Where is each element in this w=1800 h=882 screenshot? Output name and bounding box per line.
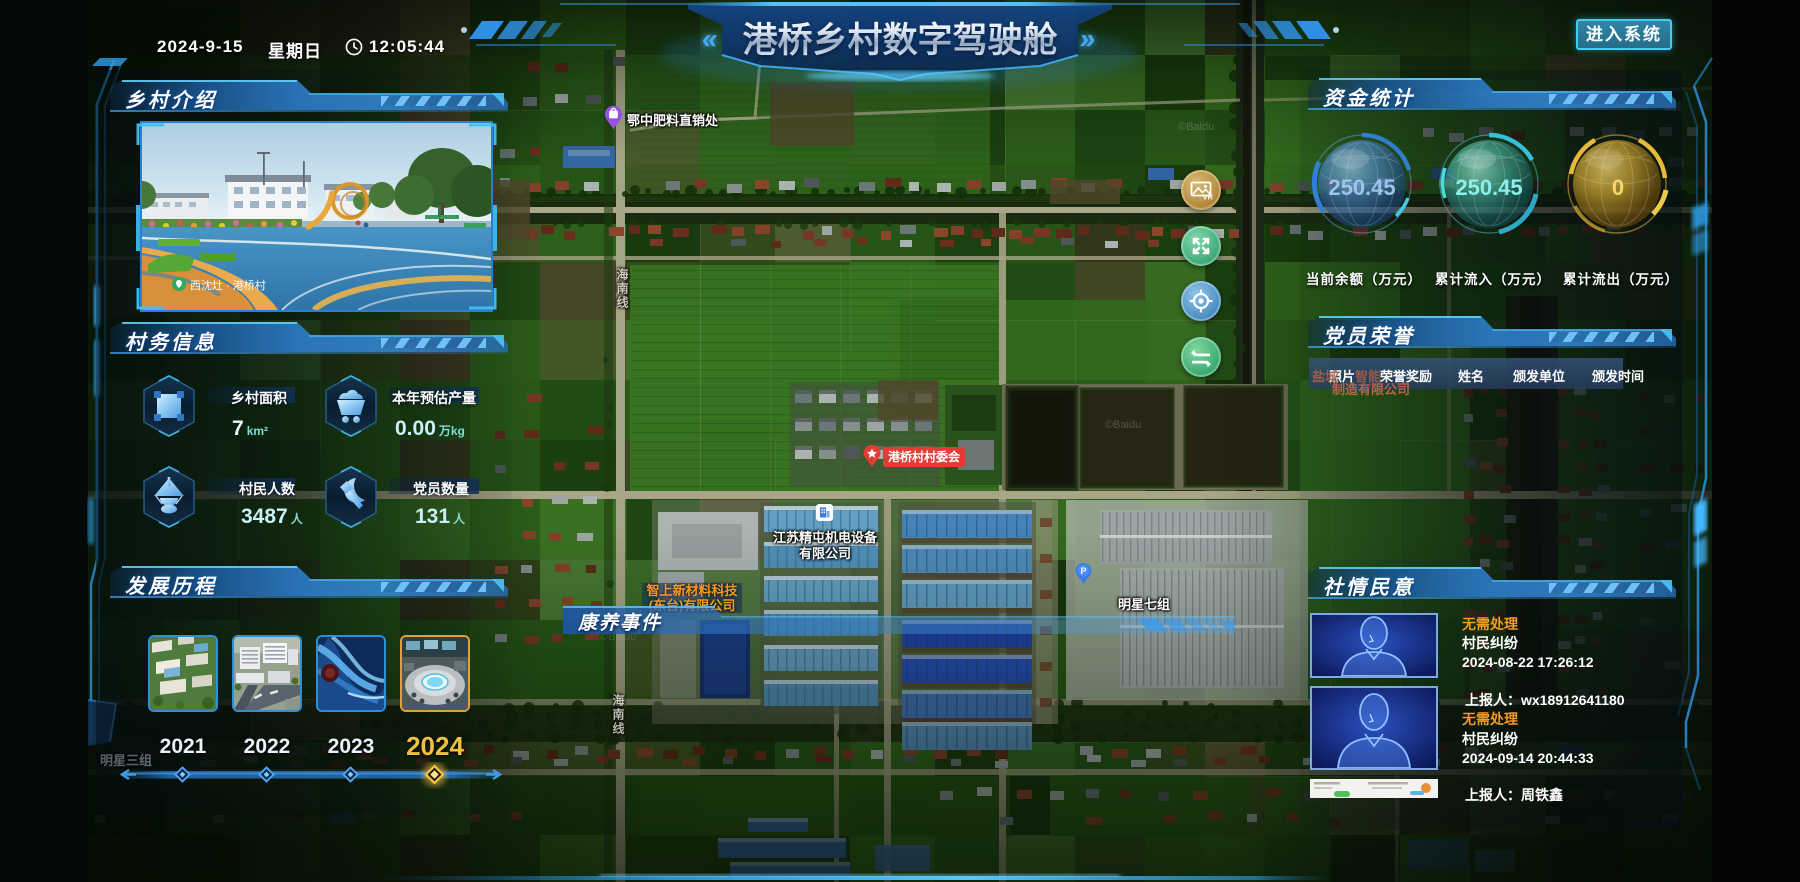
- svg-text:VR: VR: [1203, 193, 1214, 202]
- svg-text:P: P: [1080, 566, 1086, 576]
